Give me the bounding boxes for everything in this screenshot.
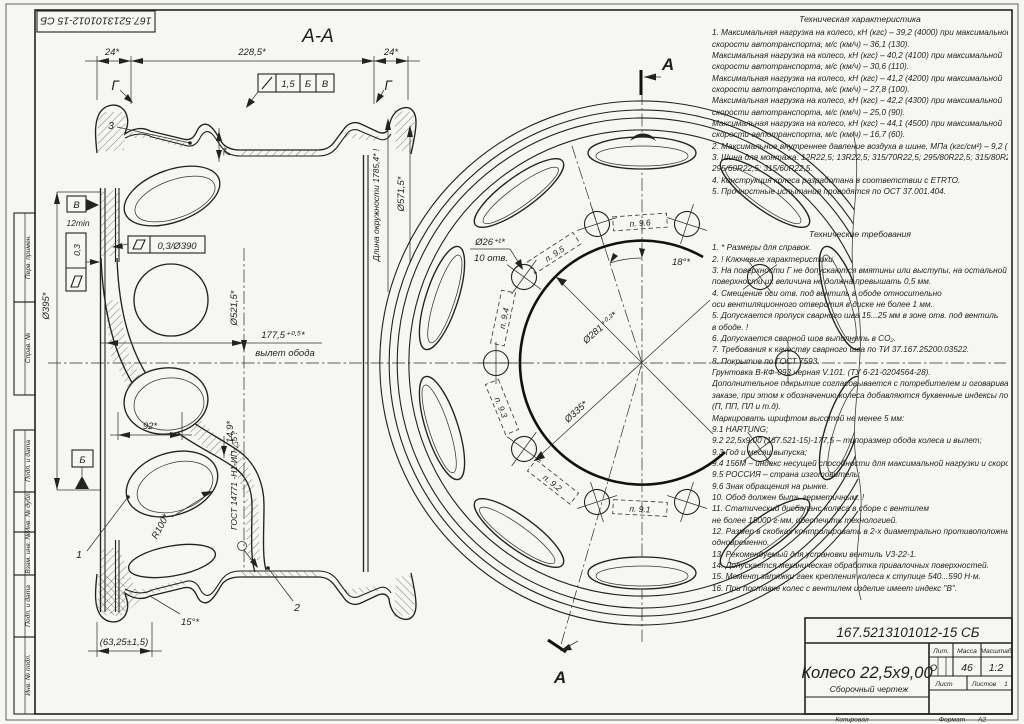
note-line: Максимальная нагрузка на колесо, кН (кгс… (712, 73, 1008, 84)
svg-text:24*: 24* (104, 47, 120, 58)
dia-335: Ø335* (562, 399, 590, 426)
svg-text:п. 9.3: п. 9.3 (492, 396, 509, 420)
surface-g-left: Г (111, 78, 120, 93)
svg-text:Масса: Масса (957, 648, 977, 655)
product-name: Колесо 22,5x9,00 (801, 664, 933, 682)
note-line: 1. Максимальная нагрузка на колесо, кН (… (712, 27, 1008, 38)
title-block: 167.5213101012-15 СБ Колесо 22,5x9,00 Сб… (801, 618, 1012, 714)
note-line: (П, ПП, ПЛ и т.д). (712, 401, 1008, 412)
note-line: 2. Максимальное внутреннее давление возд… (712, 141, 1008, 152)
svg-text:Ø26⁺¹*: Ø26⁺¹* (474, 237, 505, 248)
svg-text:24*: 24* (383, 47, 399, 58)
note-line: 1. * Размеры для справок. (712, 242, 1008, 253)
dim-18deg: 18°* (672, 257, 690, 268)
note-line: одновременно. (712, 537, 1008, 548)
dia-281: Ø281⁺⁰·²* (580, 310, 620, 347)
surface-g-right: Г (384, 78, 393, 93)
svg-text:10 отв.: 10 отв. (474, 253, 508, 264)
note-line: 2. ! Ключевые характеристики. (712, 254, 1008, 265)
note-line: 9.3 Год и месяц выпуска; (712, 447, 1008, 458)
note-line: 295/60R22,5; 315/60R22,5. (712, 163, 1008, 174)
bolt-hole-callout: Ø26⁺¹* 10 отв. (470, 237, 523, 270)
note-line: 3. Шина для монтажа: 12R22,5; 13R22,5; 3… (712, 152, 1008, 163)
note-line: 16. При поставке колес с вентилем издели… (712, 583, 1008, 594)
note-line: 4. Конструкция колеса разработана в соот… (712, 175, 1008, 186)
svg-text:п. 9.4: п. 9.4 (497, 307, 511, 330)
side-label: Инв. № дубл. (24, 491, 32, 532)
svg-text:Б: Б (305, 79, 311, 90)
lit-value: О (930, 663, 938, 674)
section-view: А-А (41, 26, 420, 657)
cut-plane-top: А (641, 55, 674, 95)
note-line: 9.4 156М – индекс несущей способности дл… (712, 458, 1008, 469)
rim-offset-dim: 177,5⁺⁰·⁵* вылет обода (101, 330, 322, 359)
dia-521-5: Ø521,5* (229, 290, 240, 326)
tech-requirements-title: Технические требования (712, 229, 1008, 240)
tech-requirements: Технические требования 1. * Размеры для … (712, 229, 1008, 594)
note-line: 8. Покрытие по ГОСТ 7593. (712, 356, 1008, 367)
note-line: скорости автотранспорта, м/с (км/ч) – 36… (712, 39, 1008, 50)
item-3: 3 (108, 120, 114, 132)
note-line: в ободе. ! (712, 322, 1008, 333)
dim-15deg: 15°* (181, 617, 199, 628)
center-bore-arc (520, 241, 725, 485)
svg-text:Листов: Листов (971, 681, 997, 688)
svg-text:п. 9.1: п. 9.1 (629, 503, 651, 514)
format-label: Формат (939, 717, 966, 724)
sheets-value: 1 (1004, 681, 1008, 688)
note-line: 9.2 22,5x9,00 (167.521-15)-177,5 – типор… (712, 435, 1008, 446)
frame-side-boxes: Перв. примен. Справ. № Подп. и дата Инв.… (14, 213, 35, 714)
svg-text:В: В (73, 200, 80, 211)
svg-text:Лист: Лист (934, 681, 953, 688)
svg-text:177,5⁺⁰·⁵*: 177,5⁺⁰·⁵* (261, 330, 305, 341)
svg-text:вылет обода: вылет обода (255, 348, 314, 359)
dia-571-5: Ø571,5* (396, 176, 407, 212)
note-line: Маркировать шрифтом высотой не менее 5 м… (712, 413, 1008, 424)
dia-395: Ø395* (41, 292, 52, 320)
note-line: скорости автотранспорта, м/с (км/ч) – 30… (712, 61, 1008, 72)
note-line: 11. Статический дисбаланс колеса в сборе… (712, 503, 1008, 514)
section-title: А-А (301, 26, 334, 47)
svg-text:Масштаб: Масштаб (980, 647, 1011, 655)
tolerance-frame-runout: 1,5 Б В (246, 74, 334, 108)
note-line: оси вентиляционного отверстия в диске не… (712, 299, 1008, 310)
note-line: 15. Момент затяжки гаек крепления колеса… (712, 571, 1008, 582)
tech-requirements-lines: 1. * Размеры для справок.2. ! Ключевые х… (712, 242, 1008, 594)
svg-text:0,3: 0,3 (72, 244, 82, 256)
side-label: Подп. и дата (24, 440, 32, 482)
note-line: 5. Прочностные испытания проводятся по О… (712, 186, 1008, 197)
side-label: Подп. и дата (24, 585, 32, 627)
tech-characteristics-title: Техническая характеристика (712, 14, 1008, 25)
svg-text:А: А (553, 668, 566, 687)
svg-text:1,5: 1,5 (281, 79, 295, 90)
note-line: Максимальная нагрузка на колесо, кН (кгс… (712, 118, 1008, 129)
note-line: 5. Допускается пропуск сварного шва 15..… (712, 310, 1008, 321)
note-line: Дополнительное покрытие согласовывается … (712, 378, 1008, 389)
note-line: 4. Смещение оси отв. под вентиль в ободе… (712, 288, 1008, 299)
datum-v: В 12min (66, 196, 99, 228)
top-stamp-number: 167.5213101012-15 СБ (40, 15, 152, 27)
note-line: 10. Обод должен быть герметичным. ! (712, 492, 1008, 503)
note-line: заказе, при этом к обозначению колеса до… (712, 390, 1008, 401)
tolerance-frame-flatness-small: 0,3 (66, 233, 100, 291)
side-label: Взам. инв. № (25, 532, 32, 573)
note-line: 3. На поверхности Г не допускаются вмяти… (712, 265, 1008, 276)
note-line: 14. Допускается механическая обработка п… (712, 560, 1008, 571)
svg-text:ГОСТ 14771 -Н1-ИП-△5 !: ГОСТ 14771 -Н1-ИП-△5 ! (229, 431, 239, 530)
note-line: скорости автотранспорта, м/с (км/ч) – 16… (712, 129, 1008, 140)
note-line: Максимальная нагрузка на колесо, кН (кгс… (712, 95, 1008, 106)
scale-value: 1:2 (989, 662, 1004, 674)
note-line: 9.1 HARTUNG; (712, 424, 1008, 435)
dim-7: 7* (222, 147, 233, 156)
width-dimensions: 24* 228,5* 24* (85, 47, 420, 104)
item-1: 1 (76, 549, 82, 561)
tech-characteristics-lines: 1. Максимальная нагрузка на колесо, кН (… (712, 27, 1008, 197)
note-line: 13. Рекомендуемый для установки вентиль … (712, 549, 1008, 560)
tolerance-frame-flatness: 0,3/Ø390 (112, 236, 205, 253)
svg-text:Лит.: Лит. (932, 648, 949, 655)
cut-plane-bottom: А (548, 640, 578, 687)
datum-b: Б (72, 450, 93, 489)
note-line: Грунтовка В-КФ-093 черная V.101. (ТУ 6-2… (712, 367, 1008, 378)
drawing-sheet: 167.5213101012-15 СБ Перв. примен. Справ… (0, 0, 1024, 724)
mass-value: 46 (961, 662, 973, 674)
svg-text:п. 9.6: п. 9.6 (629, 217, 651, 228)
note-line: не более 15000 г·мм, обеспечить технолог… (712, 515, 1008, 526)
note-line: 12. Размер в скобках контролировать в 2-… (712, 526, 1008, 537)
note-line: Максимальная нагрузка на колесо, кН (кгс… (712, 50, 1008, 61)
note-line: 7. Требования к качеству сварного шва по… (712, 344, 1008, 355)
svg-text:А: А (661, 55, 674, 74)
circumference-dim: Длина окружности 1785,4* ! (371, 148, 381, 262)
side-label: Справ. № (25, 333, 32, 363)
copied-label: Копировал (835, 717, 868, 724)
svg-text:12min: 12min (66, 218, 89, 228)
svg-text:228,5*: 228,5* (237, 47, 266, 58)
tech-characteristics: Техническая характеристика 1. Максимальн… (712, 14, 1008, 198)
dim-92: 92* (143, 421, 158, 432)
note-line: 9.6 Знак обращения на рынке. (712, 481, 1008, 492)
side-label: Перв. примен. (25, 235, 32, 280)
svg-text:0,3/Ø390: 0,3/Ø390 (157, 241, 197, 252)
side-label: Инв. № подл. (24, 654, 32, 696)
svg-text:В: В (322, 79, 329, 90)
item-2: 2 (293, 602, 300, 614)
doc-number: 167.5213101012-15 СБ (836, 625, 979, 640)
svg-text:Б: Б (79, 455, 85, 466)
note-line: 6. Допускается сварной шов выполнять в C… (712, 333, 1008, 344)
note-line: 9.5 РОССИЯ – страна изготовитель; (712, 469, 1008, 480)
note-line: скорости автотранспорта, м/с (км/ч) – 27… (712, 84, 1008, 95)
note-line: поверхности их величина не должна превыш… (712, 276, 1008, 287)
note-line: скорости автотранспорта, м/с (км/ч) – 25… (712, 107, 1008, 118)
format-value: А2 (977, 717, 986, 724)
doc-type: Сборочный чертеж (830, 684, 910, 694)
dim-63-25: (63,25±1,5) (100, 637, 149, 648)
